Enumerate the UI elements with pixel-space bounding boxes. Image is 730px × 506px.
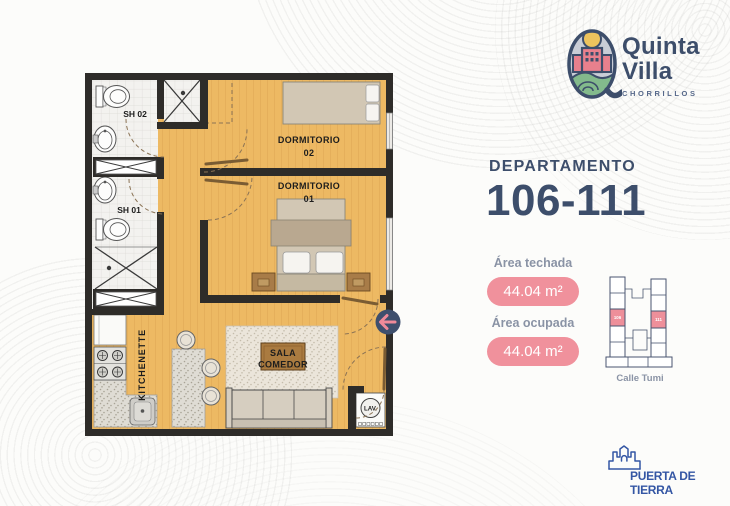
fridge — [94, 315, 126, 345]
developer-name: PUERTA DE TIERRA — [630, 469, 730, 497]
room-number-dormitorio-01: 01 — [304, 194, 315, 204]
stove — [94, 347, 126, 380]
area-ocupada-group: Área ocupada 44.04 m² — [487, 316, 579, 366]
logo-sublabel: CHORRILLOS — [622, 89, 700, 98]
unit-number: 106-111 — [486, 179, 646, 223]
area-ocupada-badge: 44.04 m² — [487, 337, 579, 366]
laundry-machine: LAV. — [356, 393, 385, 427]
street-label: Calle Tumi — [604, 373, 676, 384]
bar-counter — [172, 349, 205, 427]
area-techada-label: Área techada — [487, 256, 579, 270]
floor-plan: LAV. — [85, 73, 393, 436]
entrance-arrow-icon — [376, 310, 401, 335]
room-number-dormitorio-02: 02 — [304, 148, 315, 158]
area-techada-badge: 44.04 m² — [487, 277, 579, 306]
logo-name-line1: Quinta — [622, 34, 700, 59]
sofa — [226, 388, 332, 428]
logo-name-line2: Villa — [622, 59, 700, 84]
area-techada-group: Área techada 44.04 m² — [487, 256, 579, 306]
closet-2 — [93, 289, 159, 309]
key-plan-unit-111-label: 111 — [655, 317, 662, 322]
room-label-sh01: SH 01 — [117, 205, 141, 215]
area-ocupada-label: Área ocupada — [487, 316, 579, 330]
closet-1 — [93, 157, 159, 177]
brochure-page: LAV. — [0, 0, 730, 506]
department-label: DEPARTAMENTO — [489, 158, 636, 176]
quinta-villa-logo-icon — [566, 27, 622, 103]
room-label-dormitorio-02: DORMITORIO — [278, 135, 340, 145]
building-key-plan: 106 111 — [604, 272, 676, 370]
bed-dormitorio-01 — [271, 199, 351, 291]
room-label-comedor: COMEDOR — [258, 360, 308, 370]
bed-dormitorio-02 — [283, 82, 380, 124]
room-label-sala: SALA — [270, 348, 296, 358]
toilet-sh02 — [96, 86, 130, 108]
room-label-kitchenette: KITCHENETTE — [137, 329, 147, 401]
room-label-sh02: SH 02 — [123, 109, 147, 119]
svg-text:LAV.: LAV. — [364, 406, 377, 413]
toilet-sh01 — [96, 219, 130, 241]
brand-logo: Quinta Villa CHORRILLOS — [622, 34, 700, 98]
puerta-de-tierra-logo-icon — [608, 444, 648, 470]
kitchen-sink — [130, 398, 155, 425]
key-plan-unit-106-label: 106 — [614, 315, 622, 320]
room-label-dormitorio-01: DORMITORIO — [278, 181, 340, 191]
